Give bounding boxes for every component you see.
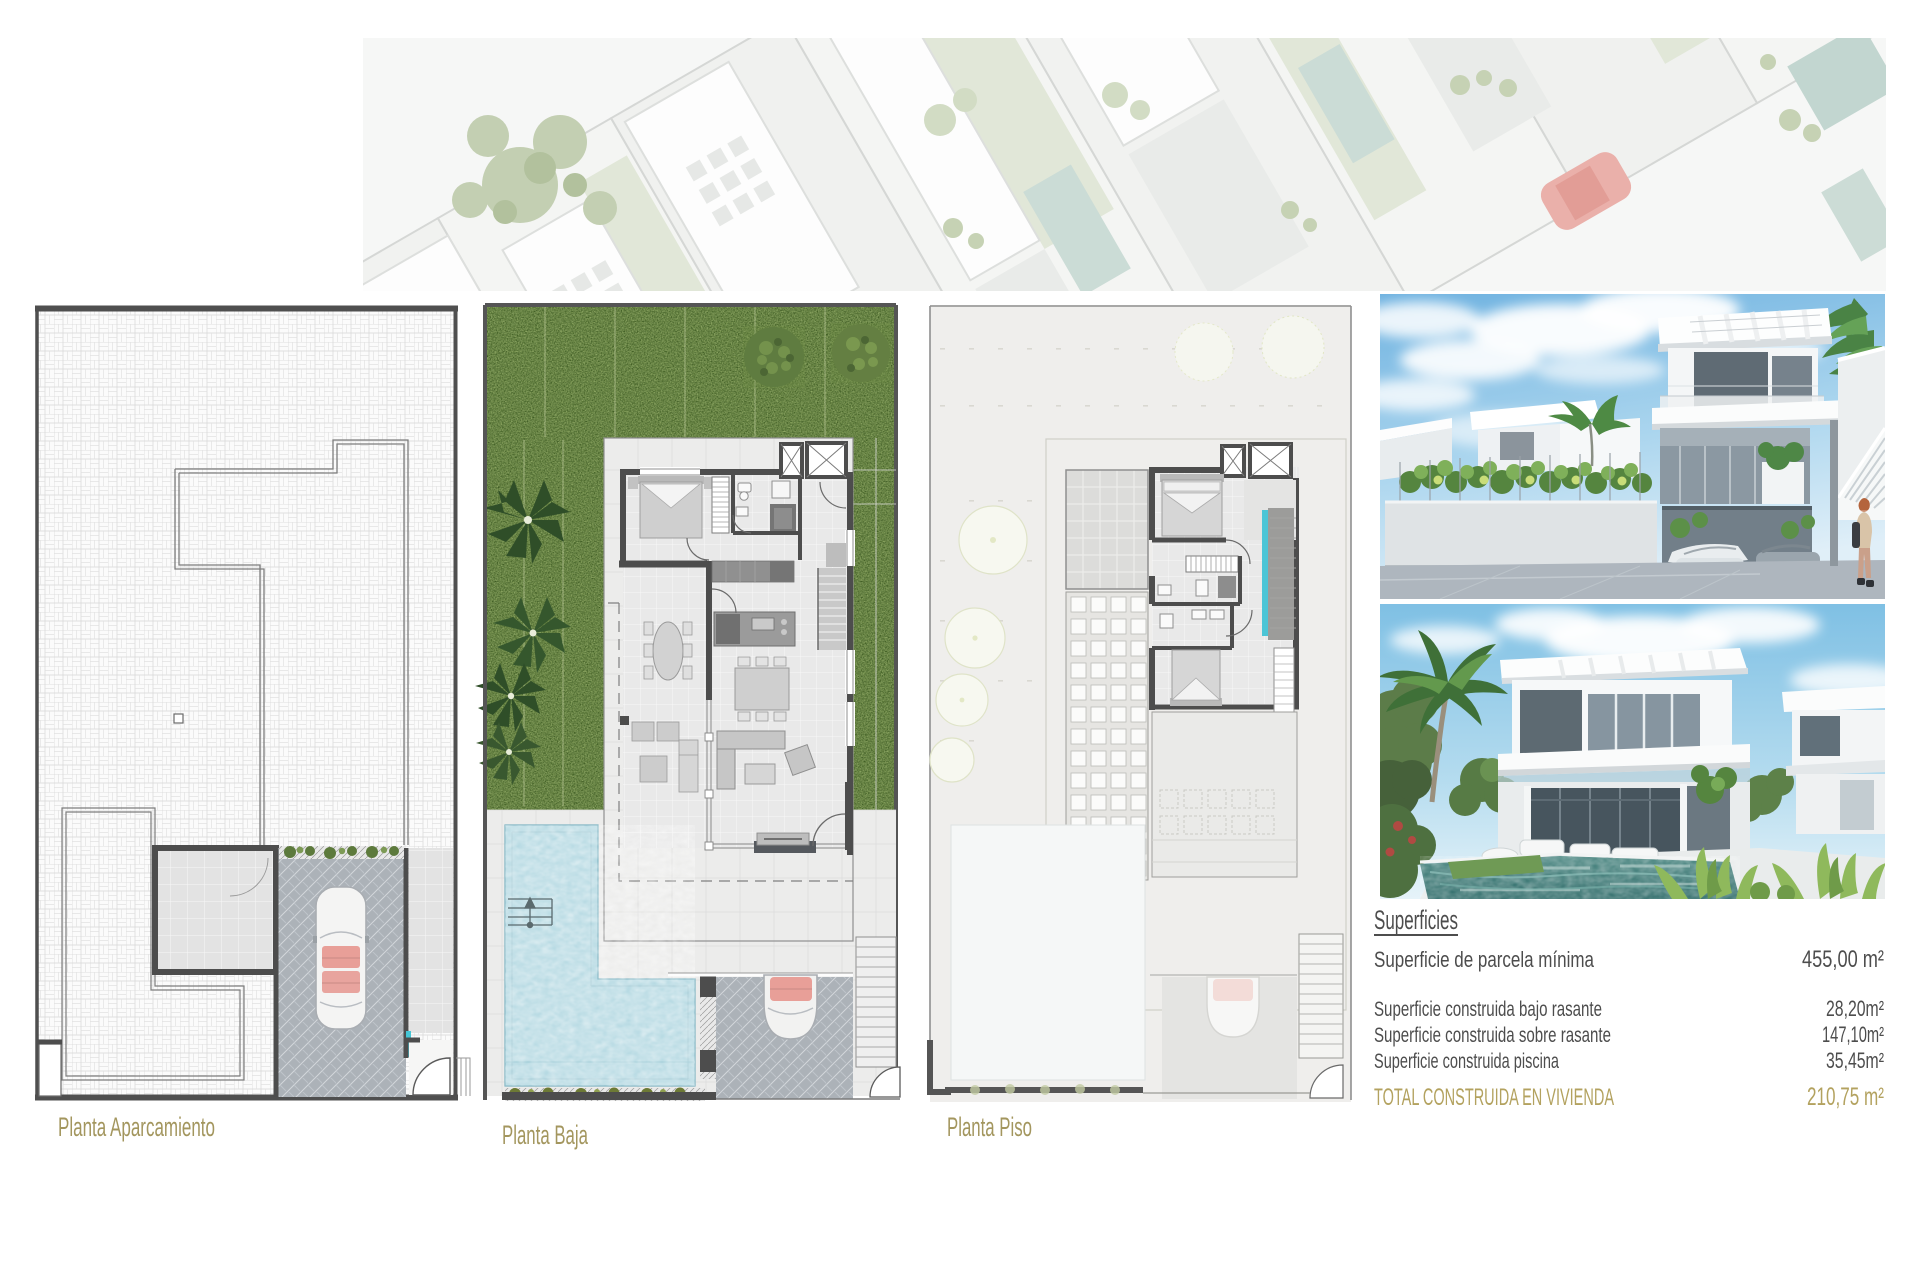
svg-text:147,10m²: 147,10m² [1822, 1022, 1884, 1047]
svg-text:TOTAL CONSTRUIDA EN VIVIENDA: TOTAL CONSTRUIDA EN VIVIENDA [1374, 1084, 1614, 1111]
svg-text:Planta Piso: Planta Piso [947, 1112, 1032, 1142]
svg-text:Superficie construida bajo ras: Superficie construida bajo rasante [1374, 998, 1602, 1021]
svg-text:210,75 m²: 210,75 m² [1807, 1083, 1884, 1111]
svg-text:Planta Baja: Planta Baja [502, 1120, 589, 1150]
svg-text:455,00 m²: 455,00 m² [1802, 946, 1884, 973]
svg-text:Superficie construida sobre ra: Superficie construida sobre rasante [1374, 1024, 1611, 1047]
svg-text:35,45m²: 35,45m² [1826, 1048, 1884, 1073]
svg-text:Superficies: Superficies [1374, 905, 1458, 935]
svg-text:28,20m²: 28,20m² [1826, 996, 1884, 1021]
svg-text:Superficie construida piscina: Superficie construida piscina [1374, 1050, 1559, 1073]
svg-text:Planta Aparcamiento: Planta Aparcamiento [58, 1112, 215, 1142]
svg-text:Superficie de parcela mínima: Superficie de parcela mínima [1374, 947, 1595, 972]
